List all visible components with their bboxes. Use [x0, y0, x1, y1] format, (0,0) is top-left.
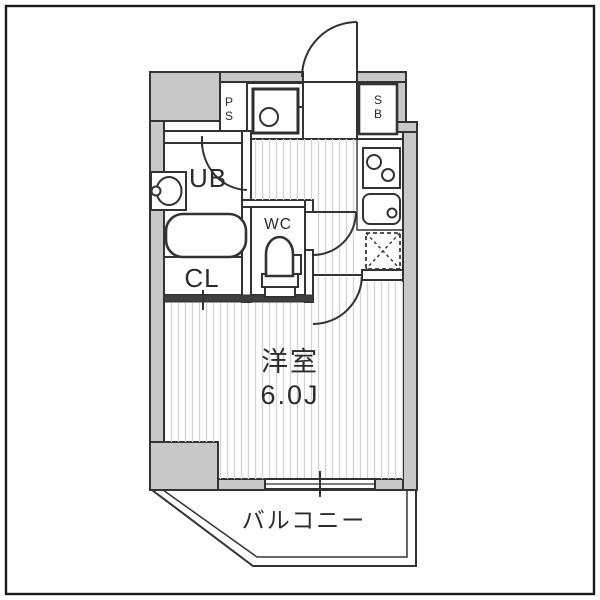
washbasin-faucet — [152, 187, 161, 196]
label-main-room-size: 6.0J — [260, 380, 319, 410]
kitchen-stove — [363, 148, 400, 188]
label-unit-bath: UB — [189, 163, 227, 193]
floor-plan-page: P S S B UB WC CL 洋室 6.0J バルコニー — [0, 0, 600, 600]
label-main-room-name: 洋室 — [261, 347, 319, 377]
stove-burner-large — [367, 155, 381, 169]
partition-wall-vertical — [242, 131, 251, 302]
washing-machine-drain — [260, 108, 278, 126]
wall-right-lower — [403, 132, 417, 490]
stove-burner-small — [382, 169, 394, 181]
entrance-door-arc — [302, 22, 357, 77]
wc-right-wall-lower — [305, 250, 313, 302]
bathtub — [166, 214, 246, 257]
hallway-floor — [251, 139, 357, 200]
wc-top-wall — [242, 200, 313, 207]
wc-right-wall-upper — [305, 200, 313, 212]
wall-top-left-block — [150, 72, 220, 121]
toilet-bowl — [266, 237, 293, 276]
wall-left — [150, 121, 164, 442]
hallway-floor-lower — [313, 200, 357, 273]
floor-plan: P S S B UB WC CL 洋室 6.0J バルコニー — [0, 0, 600, 600]
label-balcony: バルコニー — [242, 507, 367, 533]
wall-top-right-segment — [357, 72, 406, 82]
label-wc: WC — [264, 216, 292, 233]
label-shoe-box-s: S — [374, 93, 382, 107]
main-room-floor-lower — [218, 442, 403, 479]
sink-faucet — [388, 209, 397, 218]
label-shoe-box-b: B — [374, 107, 382, 121]
wall-bottom-left-block — [150, 442, 218, 490]
label-pipe-space-s: S — [225, 109, 233, 123]
wall-top-left-segment — [220, 72, 303, 82]
label-closet: CL — [184, 263, 219, 293]
label-pipe-space-p: P — [225, 95, 233, 109]
entrance-hall — [303, 82, 357, 139]
main-room-floor-upper-right — [362, 282, 403, 303]
kitchen-bottom-wall — [362, 270, 403, 280]
